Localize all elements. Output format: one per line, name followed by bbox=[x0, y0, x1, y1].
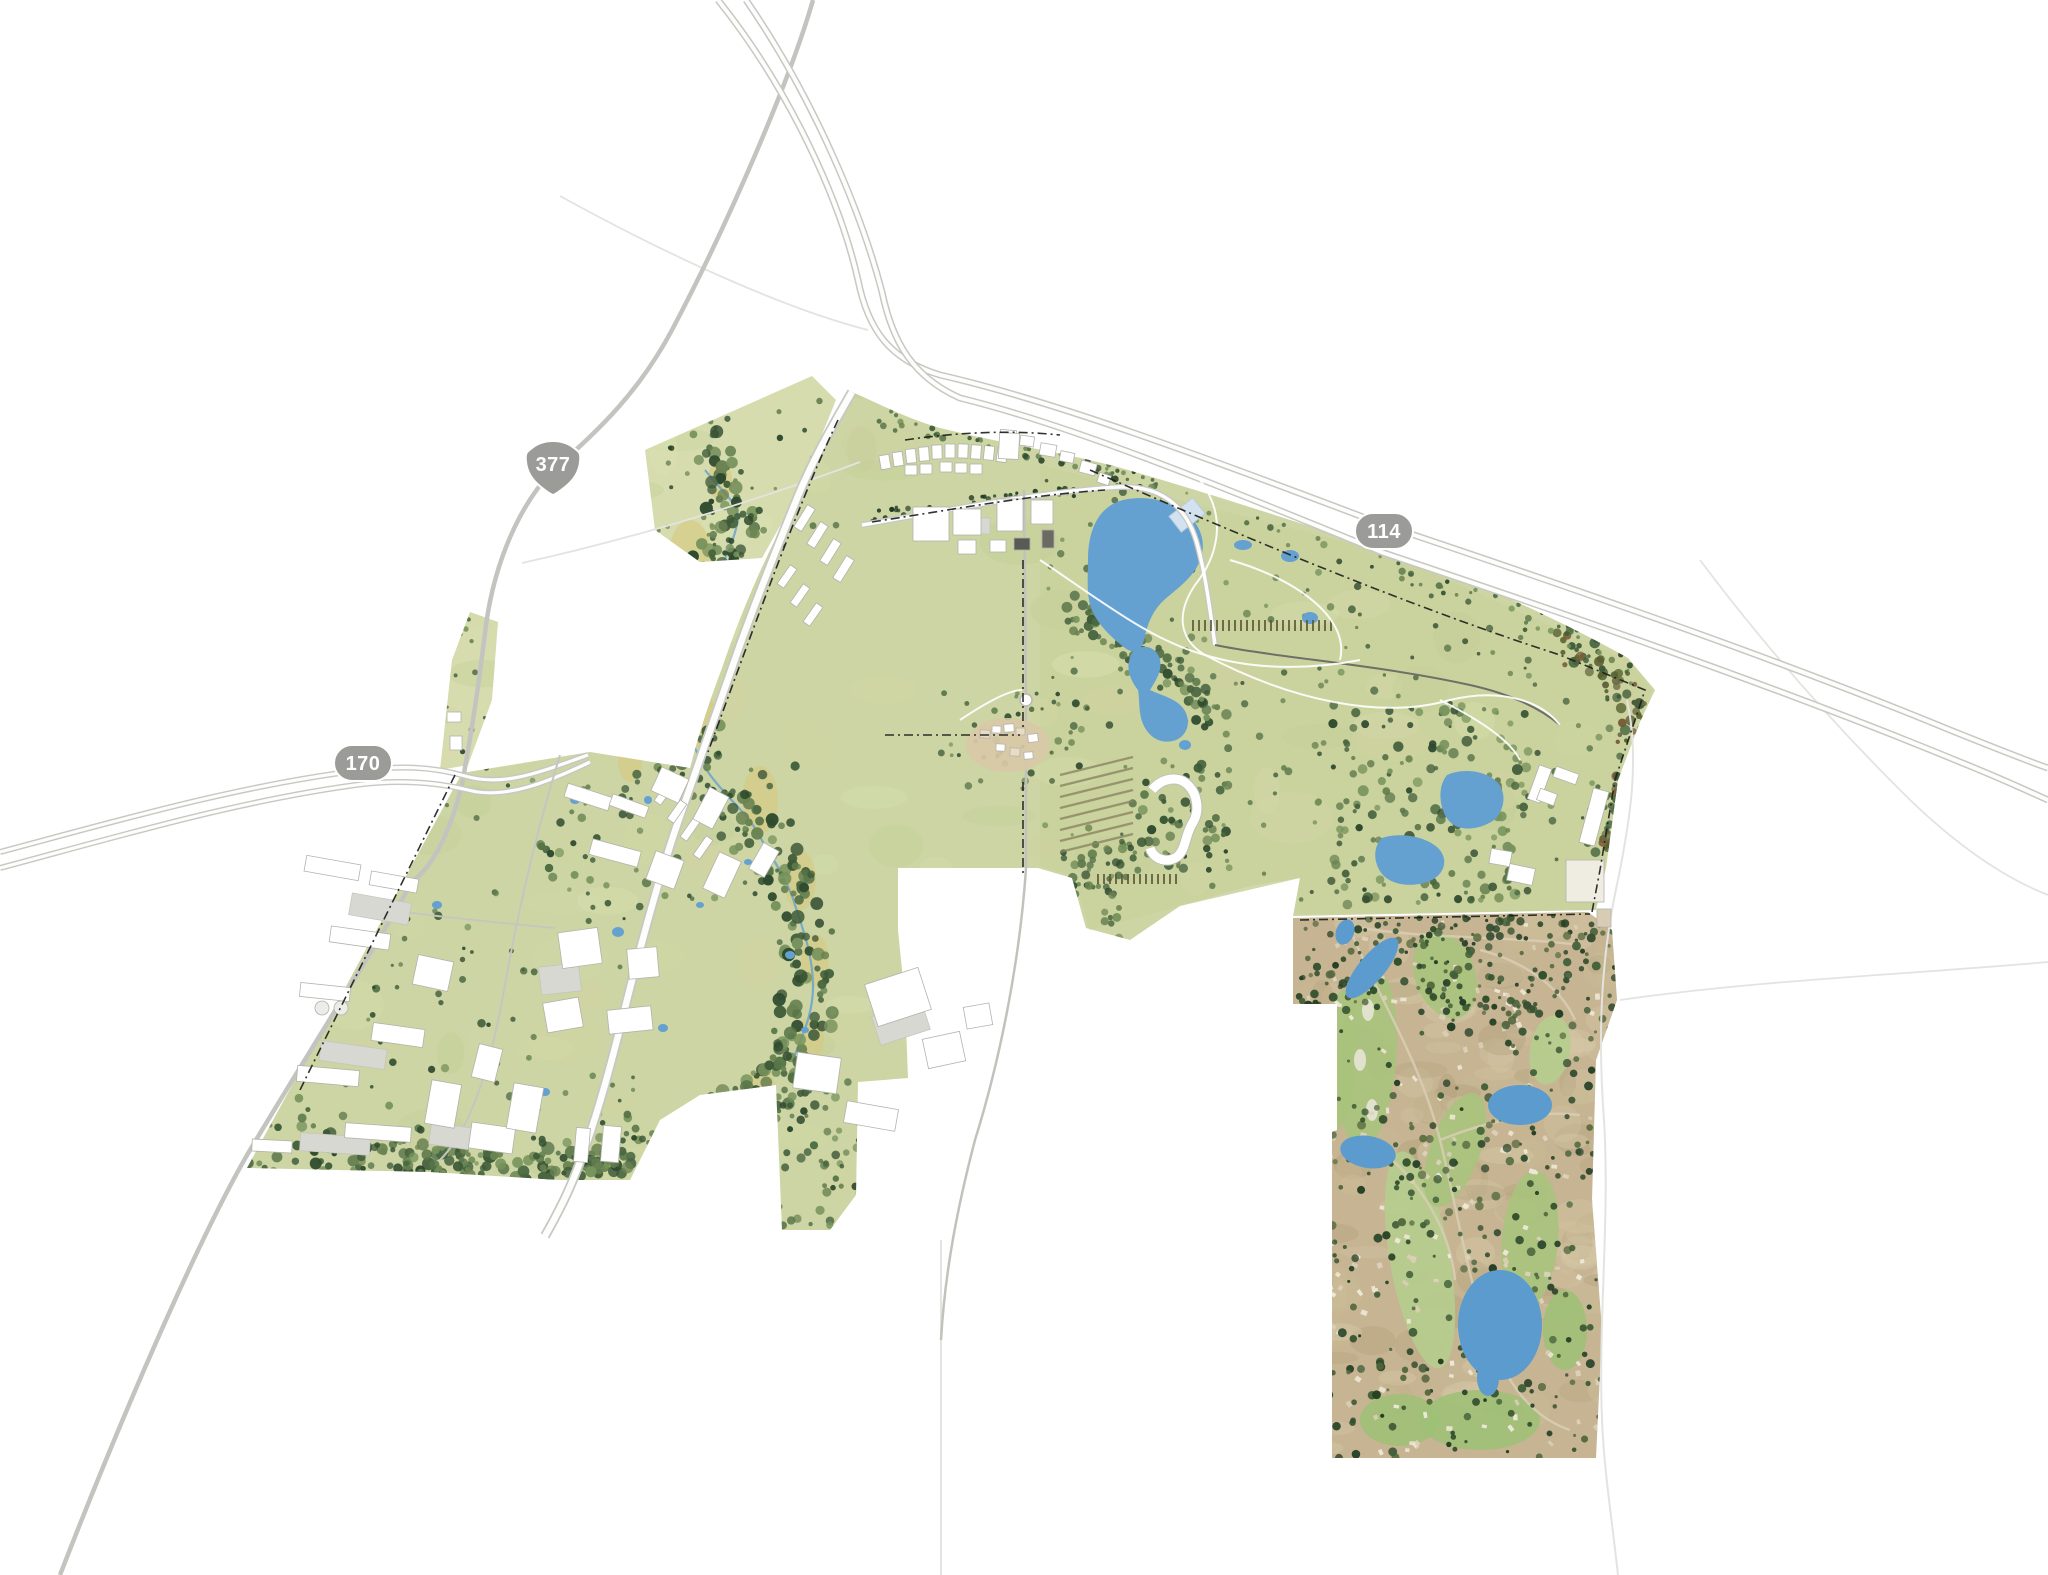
us-377-label: 377 bbox=[536, 454, 571, 476]
map-canvas: 377 170 114 bbox=[0, 0, 2048, 1575]
aerial-golf-community bbox=[1273, 906, 1639, 1463]
sh-170-shield: 170 bbox=[334, 745, 392, 781]
sh-114-label: 114 bbox=[1367, 521, 1401, 543]
master-plan-map: 377 170 114 bbox=[0, 0, 2048, 1575]
sh-170-label: 170 bbox=[346, 753, 381, 775]
us-377-shield: 377 bbox=[526, 441, 581, 495]
sh-114-shield: 114 bbox=[1355, 513, 1413, 549]
